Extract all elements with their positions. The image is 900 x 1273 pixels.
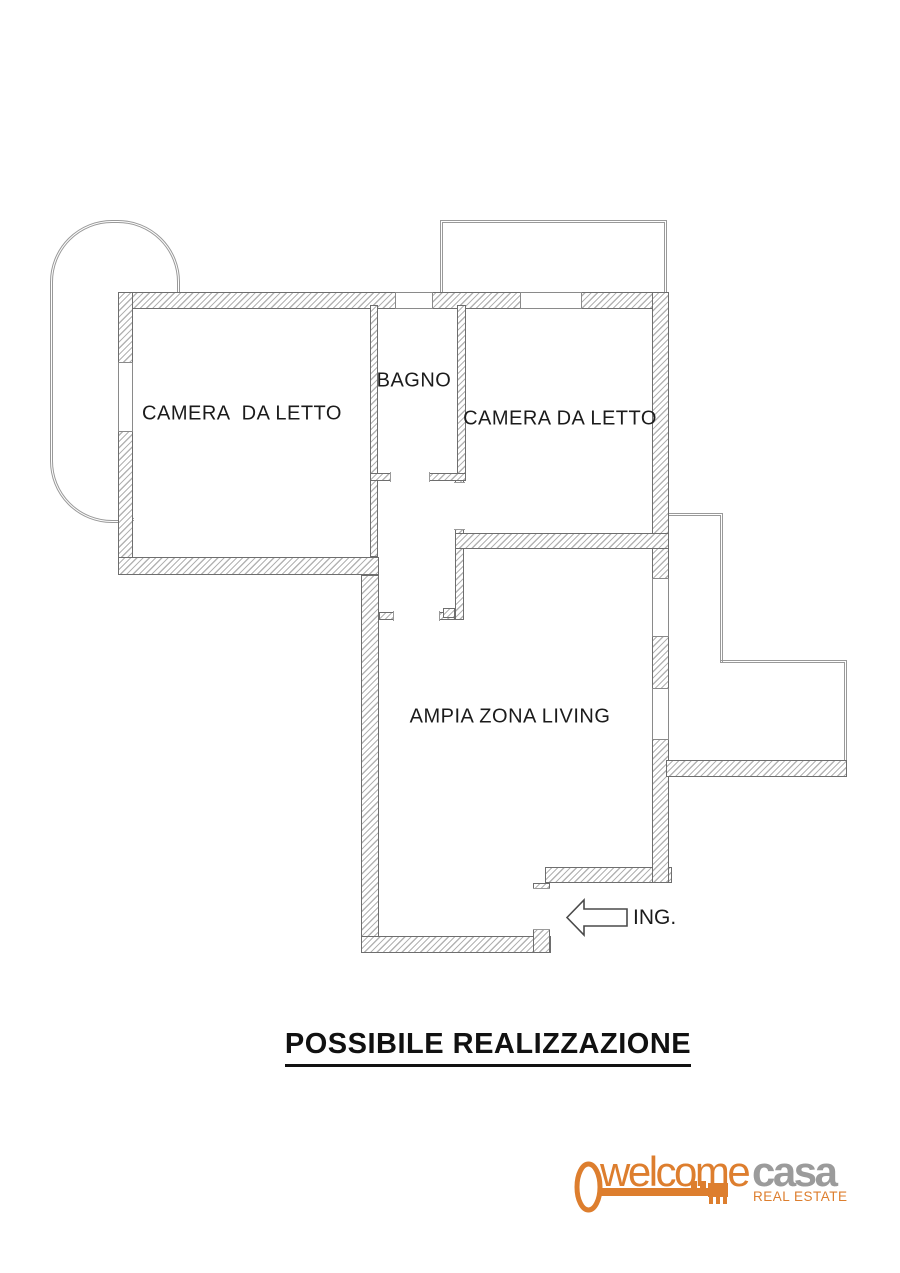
wall-living-bottom	[361, 936, 551, 953]
window-bathroom	[395, 292, 433, 309]
window-living-lower	[652, 688, 669, 740]
wall-bathroom-left	[370, 305, 378, 557]
door-bedroom-right	[454, 482, 465, 530]
logo-word-welcome: welcome	[600, 1148, 748, 1196]
balcony-right-upper-railing	[666, 513, 723, 663]
entrance-arrow-icon	[565, 898, 629, 939]
logo-tagline: REAL ESTATE	[753, 1189, 848, 1204]
floor-plan-page: CAMERA DA LETTO BAGNO CAMERA DA LETTO AM…	[0, 0, 900, 1273]
wall-bedroom2-bottom	[455, 533, 669, 549]
window-living-upper	[652, 578, 669, 637]
page-title-text: POSSIBILE REALIZZAZIONE	[285, 1028, 691, 1067]
balcony-top	[440, 220, 667, 296]
room-label-bedroom-right: CAMERA DA LETTO	[463, 408, 657, 431]
door-entrance	[533, 888, 550, 930]
wall-living-left	[361, 575, 379, 953]
window-bedroom-right	[520, 292, 582, 309]
wall-left-bedroom	[118, 292, 133, 575]
balcony-right-lower-railing	[720, 660, 847, 763]
door-bathroom	[390, 472, 430, 482]
agency-logo: welcome casa REAL ESTATE	[563, 1128, 873, 1223]
door-hall	[393, 611, 440, 621]
room-label-bedroom-left: CAMERA DA LETTO	[142, 403, 342, 426]
window-bedroom-left	[118, 362, 133, 432]
balcony-clip-patch	[134, 302, 204, 558]
wall-bedroom-bottom	[118, 557, 379, 575]
wall-balcony-right-bottom	[666, 760, 847, 777]
wall-bathroom-right	[457, 305, 466, 480]
wall-hall-tab	[443, 608, 455, 618]
room-label-bathroom: BAGNO	[377, 370, 452, 393]
page-title: POSSIBILE REALIZZAZIONE	[238, 1028, 738, 1067]
wall-top	[118, 292, 669, 309]
entrance-label: ING.	[633, 906, 676, 930]
room-label-living: AMPIA ZONA LIVING	[410, 706, 611, 729]
